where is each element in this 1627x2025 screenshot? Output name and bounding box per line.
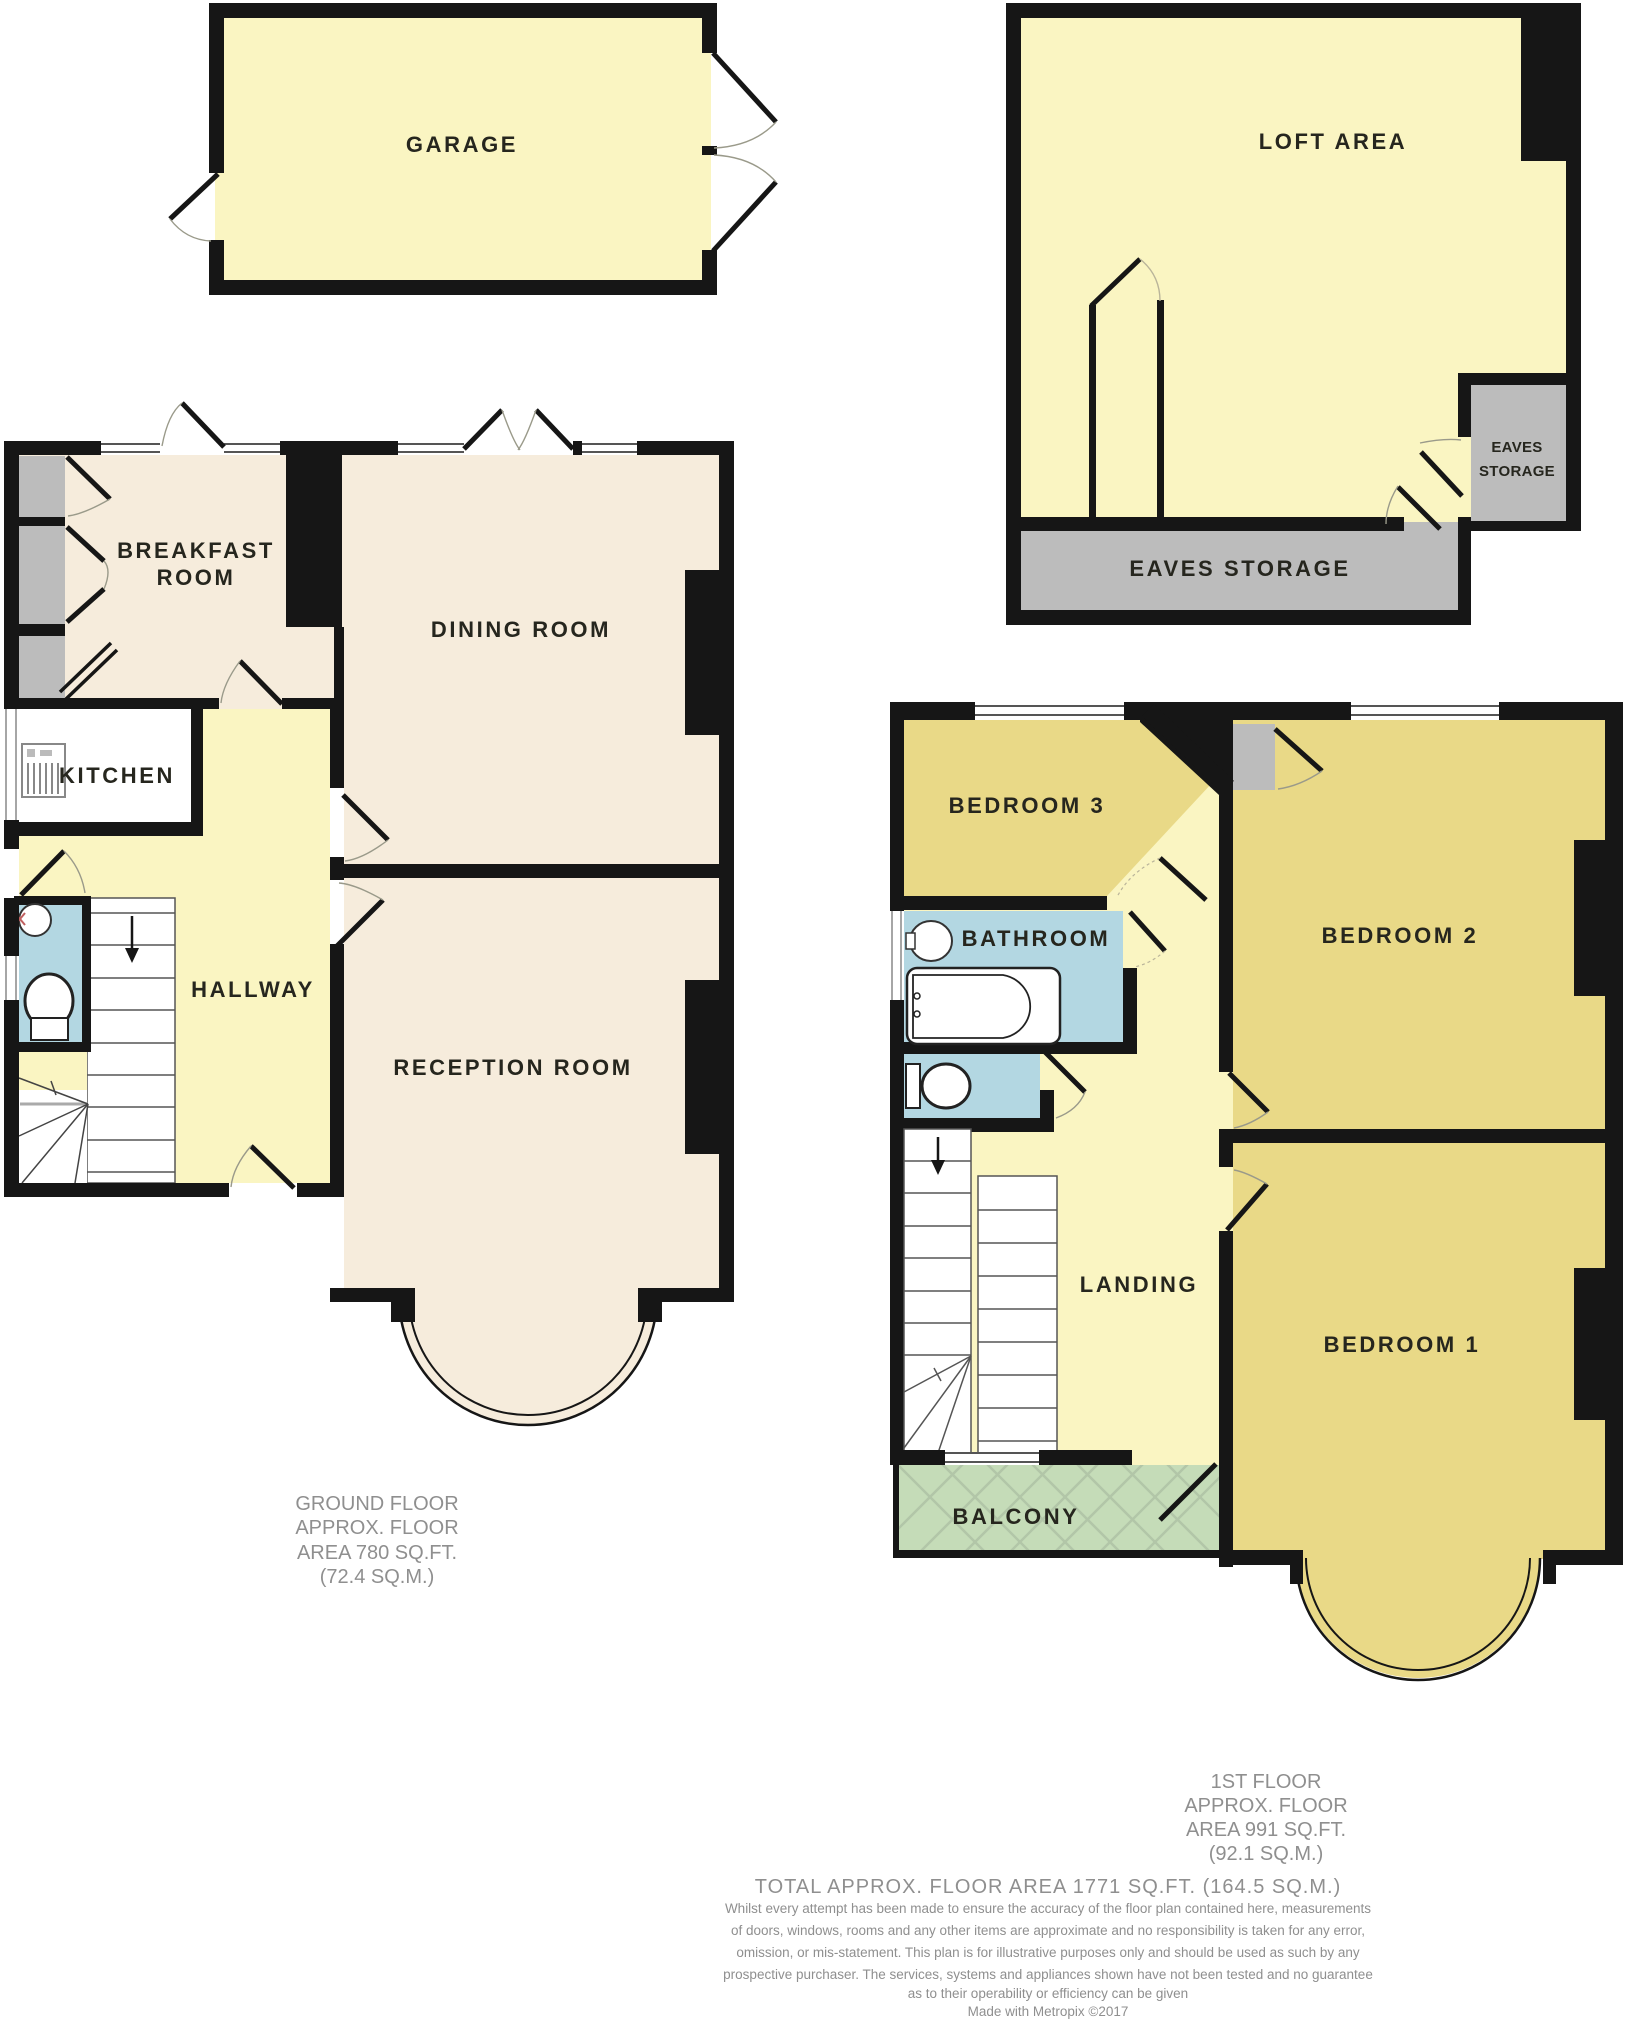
svg-text:KITCHEN: KITCHEN [59, 763, 175, 788]
svg-text:HALLWAY: HALLWAY [191, 977, 315, 1002]
svg-text:RECEPTION ROOM: RECEPTION ROOM [393, 1055, 632, 1080]
svg-text:GARAGE: GARAGE [406, 132, 518, 157]
svg-text:as to their operability or eff: as to their operability or efficiency ca… [908, 1986, 1188, 2001]
svg-text:BALCONY: BALCONY [953, 1504, 1080, 1529]
svg-text:Made with Metropix ©2017: Made with Metropix ©2017 [968, 2004, 1129, 2019]
svg-text:DINING ROOM: DINING ROOM [431, 617, 611, 642]
svg-text:TOTAL APPROX. FLOOR AREA 1771: TOTAL APPROX. FLOOR AREA 1771 SQ.FT. (16… [755, 1876, 1341, 1898]
svg-text:LANDING: LANDING [1080, 1272, 1198, 1297]
svg-text:(72.4 SQ.M.): (72.4 SQ.M.) [320, 1566, 434, 1588]
svg-text:APPROX. FLOOR: APPROX. FLOOR [1184, 1795, 1347, 1817]
svg-text:1ST FLOOR: 1ST FLOOR [1211, 1771, 1322, 1793]
svg-text:APPROX. FLOOR: APPROX. FLOOR [295, 1517, 458, 1539]
svg-text:EAVES STORAGE: EAVES STORAGE [1129, 556, 1350, 581]
svg-text:BREAKFAST: BREAKFAST [117, 538, 275, 563]
svg-text:AREA 991 SQ.FT.: AREA 991 SQ.FT. [1186, 1819, 1346, 1841]
svg-text:BATHROOM: BATHROOM [962, 926, 1111, 951]
svg-text:BEDROOM 1: BEDROOM 1 [1324, 1332, 1481, 1357]
svg-text:prospective purchaser. The ser: prospective purchaser. The services, sys… [723, 1967, 1373, 1982]
svg-text:GROUND FLOOR: GROUND FLOOR [295, 1493, 458, 1515]
svg-text:STORAGE: STORAGE [1479, 463, 1555, 480]
svg-text:(92.1 SQ.M.): (92.1 SQ.M.) [1209, 1843, 1323, 1865]
svg-text:ROOM: ROOM [157, 565, 236, 590]
svg-text:EAVES: EAVES [1491, 439, 1542, 456]
svg-text:omission, or mis-statement. Th: omission, or mis-statement. This plan is… [736, 1945, 1360, 1960]
svg-text:LOFT AREA: LOFT AREA [1259, 129, 1407, 154]
svg-text:AREA 780 SQ.FT.: AREA 780 SQ.FT. [297, 1542, 457, 1564]
svg-text:of doors, windows, rooms and a: of doors, windows, rooms and any other i… [731, 1923, 1365, 1938]
svg-text:BEDROOM 2: BEDROOM 2 [1322, 923, 1479, 948]
svg-text:Whilst every attempt has been: Whilst every attempt has been made to en… [725, 1901, 1371, 1916]
svg-text:BEDROOM 3: BEDROOM 3 [949, 793, 1106, 818]
